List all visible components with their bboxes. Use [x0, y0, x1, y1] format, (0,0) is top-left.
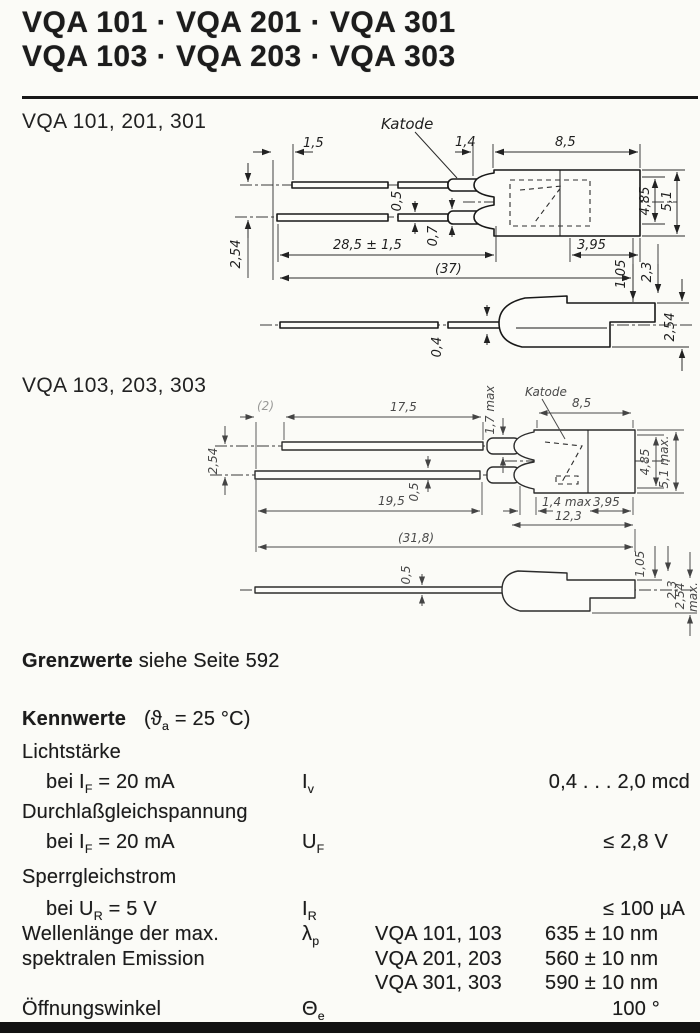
- wellenlaenge-label-2: spektralen Emission: [22, 948, 205, 971]
- types-560: VQA 201, 203: [375, 948, 502, 971]
- dim-3-95: 3,95: [577, 238, 606, 253]
- dim-2-54-right: 2,54: [663, 313, 678, 342]
- dim-2-54-left: 2,54: [229, 240, 244, 269]
- kennwerte-term: Kennwerte: [22, 708, 126, 730]
- grenzwerte-term: Grenzwerte: [22, 650, 133, 672]
- dim-1-4: 1,4: [455, 135, 476, 150]
- types-635: VQA 101, 103: [375, 923, 502, 946]
- dim-8-5-2: 8,5: [572, 396, 591, 410]
- row-group-lichtstaerke: Lichtstärke: [22, 741, 692, 767]
- value-590: 590 ± 10 nm: [545, 972, 658, 995]
- dim-0-5-2: 0,5: [407, 482, 421, 501]
- condition-label: bei IF = 20 mA: [46, 831, 175, 856]
- value-durchlass: ≤ 2,8 V: [603, 831, 668, 854]
- dim-3-95-2: 3,95: [593, 495, 620, 509]
- katode-label: Katode: [381, 116, 433, 133]
- drawing-vqa101-family: 1,5 Katode 1,4 8,5 4,85 5,1: [215, 116, 700, 378]
- group-label: Sperrgleichstrom: [22, 866, 176, 889]
- dim-5-1: 5,1: [660, 191, 675, 212]
- dim-28-5: 28,5 ± 1,5: [333, 238, 402, 253]
- dim-max-suffix: max.: [686, 582, 700, 612]
- header-divider: [22, 96, 698, 99]
- oeffnungswinkel-label: Öffnungswinkel: [22, 998, 161, 1021]
- page-footer-bar: [0, 1022, 700, 1033]
- dim-2-54-side: 2,54: [673, 583, 687, 610]
- title-line-1: VQA 101 · VQA 201 · VQA 301: [22, 6, 456, 40]
- dim-0-4: 0,4: [430, 337, 445, 358]
- kennwerte-heading: Kennwerte(ϑa = 25 °C): [22, 708, 251, 733]
- symbol-uf: UF: [302, 831, 324, 856]
- row-wellenlaenge-1: Wellenlänge der max. λp VQA 101, 103 635…: [22, 923, 692, 949]
- value-635: 635 ± 10 nm: [545, 923, 658, 946]
- row-oeffnungswinkel: Öffnungswinkel Θe 100 °: [22, 998, 692, 1024]
- dim-2-54-2: 2,54: [206, 448, 220, 475]
- dim-17-5: 17,5: [390, 400, 417, 414]
- dim-1-5: 1,5: [303, 136, 324, 151]
- row-durchlass: bei IF = 20 mA UF ≤ 2,8 V: [22, 831, 692, 857]
- datasheet-page: VQA 101 · VQA 201 · VQA 301 VQA 103 · VQ…: [0, 0, 700, 1034]
- dim-5-1-max: 5,1 max.: [657, 436, 671, 489]
- kennwerte-condition: (ϑa = 25 °C): [144, 708, 251, 730]
- grenzwerte-line: Grenzwerte siehe Seite 592: [22, 650, 280, 673]
- title-line-2: VQA 103 · VQA 203 · VQA 303: [22, 40, 456, 74]
- dim-0-7: 0,7: [426, 225, 441, 246]
- component-outline-side-view: [280, 296, 655, 347]
- group-label: Durchlaßgleichspannung: [22, 801, 248, 824]
- dim-0-5: 0,5: [390, 191, 405, 212]
- group-label: Lichtstärke: [22, 741, 121, 764]
- component-outline-top-view: [277, 170, 640, 236]
- dim-2-3: 2,3: [640, 262, 655, 283]
- dim-1-05-2: 1,05: [633, 551, 647, 578]
- dim-12-3: 12,3: [555, 509, 582, 523]
- condition-label: bei UR = 5 V: [46, 898, 157, 923]
- dim-8-5: 8,5: [555, 135, 576, 150]
- row-sperr: bei UR = 5 V IR ≤ 100 µA: [22, 898, 692, 924]
- grenzwerte-rest: siehe Seite 592: [133, 650, 280, 672]
- symbol-lambda-p: λp: [302, 923, 319, 948]
- component-outline-top-view-2: [255, 430, 635, 493]
- symbol-iv: Iv: [302, 771, 314, 796]
- dim-2: (2): [257, 399, 274, 413]
- value-oeffnungswinkel: 100 °: [612, 998, 660, 1021]
- section1-label: VQA 101, 201, 301: [22, 110, 206, 134]
- symbol-ir: IR: [302, 898, 317, 923]
- row-wellenlaenge-3: VQA 301, 303 590 ± 10 nm: [22, 972, 692, 998]
- dimensions-1: 1,5 Katode 1,4 8,5 4,85 5,1: [229, 116, 689, 371]
- value-lichtstaerke: 0,4 . . . 2,0 mcd: [549, 771, 690, 794]
- row-group-sperr: Sperrgleichstrom: [22, 866, 692, 892]
- row-wellenlaenge-2: spektralen Emission VQA 201, 203 560 ± 1…: [22, 948, 692, 974]
- dim-4-85: 4,85: [638, 187, 653, 216]
- row-lichtstaerke: bei IF = 20 mA Iv 0,4 . . . 2,0 mcd: [22, 771, 692, 797]
- dim-31-8: (31,8): [398, 531, 434, 545]
- value-sperr: ≤ 100 µA: [603, 898, 685, 921]
- types-590: VQA 301, 303: [375, 972, 502, 995]
- component-outline-side-view-2: [255, 571, 635, 611]
- dim-19-5: 19,5: [378, 494, 405, 508]
- section2-label: VQA 103, 203, 303: [22, 374, 206, 398]
- dim-1-4-max: 1,4 max: [542, 495, 592, 509]
- katode-label-2: Katode: [525, 385, 567, 399]
- dim-37: (37): [435, 262, 462, 277]
- condition-label: bei IF = 20 mA: [46, 771, 175, 796]
- dim-0-5-side: 0,5: [399, 565, 413, 584]
- dim-1-7-max: 1,7 max: [483, 385, 497, 435]
- drawing-vqa103-family: (2) 17,5 1,7 max Katode 8,5 2,54: [200, 384, 700, 640]
- dim-4-85-2: 4,85: [638, 449, 652, 476]
- dim-1-05: 1,05: [614, 260, 629, 289]
- row-group-durchlass: Durchlaßgleichspannung: [22, 801, 692, 827]
- value-560: 560 ± 10 nm: [545, 948, 658, 971]
- symbol-theta-e: Θe: [302, 998, 325, 1023]
- wellenlaenge-label-1: Wellenlänge der max.: [22, 923, 219, 946]
